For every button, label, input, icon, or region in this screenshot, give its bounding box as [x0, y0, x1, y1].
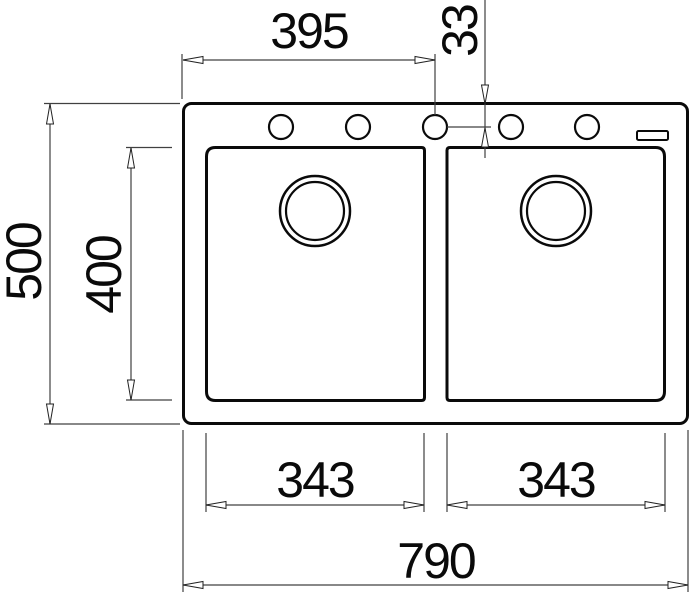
dim-500-arrow-bottom: [47, 404, 54, 424]
dim-33-arrow-top: [482, 85, 489, 104]
dim-395-arrow-left: [183, 57, 203, 64]
dimension-33: 33: [432, 0, 491, 158]
faucet-hole-4: [499, 115, 523, 139]
faucet-holes: [269, 115, 599, 139]
right-drain: [521, 176, 591, 246]
dim-790-label: 790: [397, 533, 475, 589]
faucet-hole-5: [575, 115, 599, 139]
faucet-hole-3: [423, 115, 447, 139]
left-bowl: [207, 148, 425, 401]
sink-outline: [184, 104, 688, 424]
dim-400-arrow-bottom: [128, 380, 135, 400]
dimension-395: 395: [182, 3, 435, 115]
right-drain-outer-ring: [521, 176, 591, 246]
dim-33-arrow-bottom: [482, 128, 489, 147]
dimension-343-right: 343: [447, 433, 665, 512]
faucet-hole-1: [269, 115, 293, 139]
dim-400-arrow-top: [128, 148, 135, 168]
dimension-343-left: 343: [206, 433, 424, 512]
left-drain-outer-ring: [280, 176, 350, 246]
drawing-canvas: 395 33 500 400: [0, 0, 691, 600]
dimension-790: 790: [183, 430, 688, 592]
dim-343R-arrow-right: [645, 502, 665, 509]
dim-395-label: 395: [270, 3, 348, 59]
right-drain-inner-ring: [527, 182, 585, 240]
logo-badge: [637, 131, 668, 140]
sink-body: [184, 104, 688, 424]
dim-343L-arrow-left: [206, 502, 226, 509]
dim-500-label: 500: [0, 223, 52, 301]
left-drain: [280, 176, 350, 246]
dim-343R-label: 343: [517, 452, 595, 508]
dim-790-arrow-left: [183, 582, 203, 589]
sink-dimension-drawing: 395 33 500 400: [0, 0, 691, 600]
left-drain-inner-ring: [286, 182, 344, 240]
dim-500-arrow-top: [47, 104, 54, 124]
right-bowl: [447, 148, 665, 401]
dim-343L-arrow-right: [404, 502, 424, 509]
dim-343R-arrow-left: [447, 502, 467, 509]
dim-33-label: 33: [432, 5, 488, 57]
dim-400-label: 400: [76, 236, 132, 314]
dim-790-arrow-right: [668, 582, 688, 589]
dimension-400: 400: [76, 148, 172, 401]
faucet-hole-2: [346, 115, 370, 139]
dim-343L-label: 343: [276, 452, 354, 508]
